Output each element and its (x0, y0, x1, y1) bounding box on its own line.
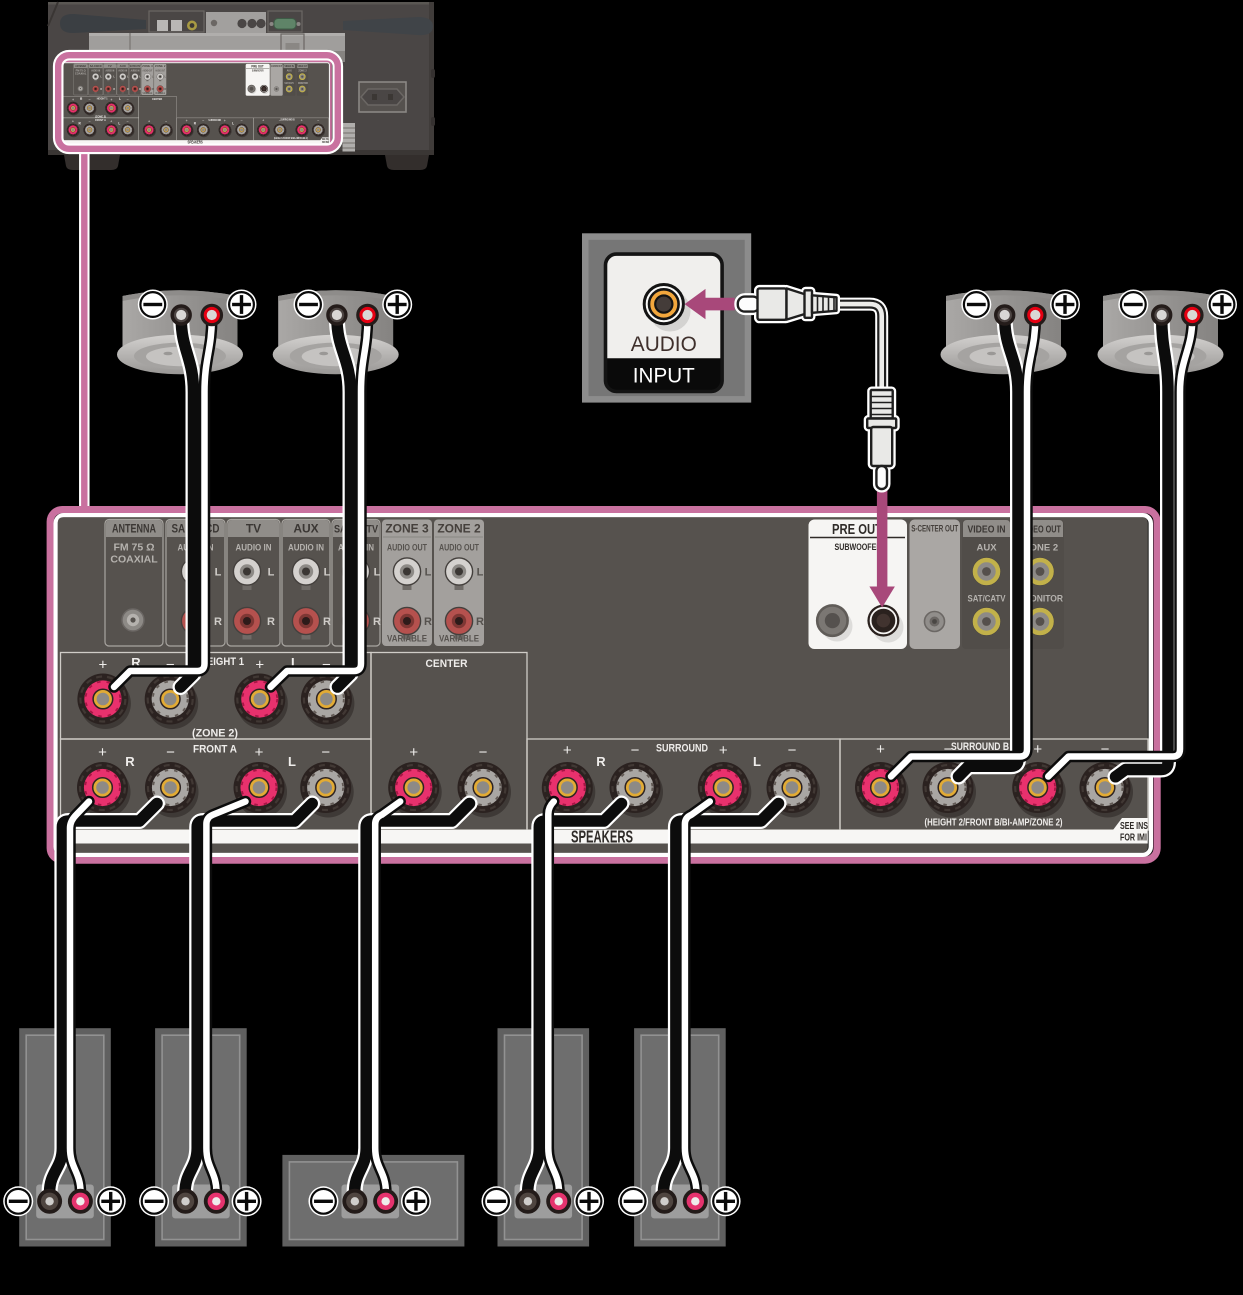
svg-text:FOR IMI: FOR IMI (1120, 832, 1147, 844)
svg-text:R: R (476, 616, 484, 628)
svg-text:ZONE 3: ZONE 3 (385, 522, 429, 536)
svg-text:VARIABLE: VARIABLE (387, 634, 427, 645)
svg-text:−: − (166, 744, 175, 761)
svg-text:COAXIAL: COAXIAL (110, 554, 158, 566)
svg-text:ANTENNA: ANTENNA (112, 524, 156, 536)
svg-text:AUDIO OUT: AUDIO OUT (387, 543, 427, 553)
svg-text:PRE OUT: PRE OUT (832, 522, 882, 538)
svg-text:L: L (324, 567, 331, 579)
svg-text:+: + (563, 742, 572, 759)
svg-text:R: R (267, 616, 275, 628)
svg-text:S-CENTER OUT: S-CENTER OUT (911, 524, 958, 534)
svg-text:AUDIO IN: AUDIO IN (288, 543, 324, 553)
svg-text:L: L (425, 567, 432, 579)
svg-text:−: − (479, 744, 488, 761)
svg-text:AUDIO IN: AUDIO IN (236, 543, 272, 553)
svg-text:L: L (374, 567, 381, 579)
svg-text:R: R (323, 616, 331, 628)
svg-text:(HEIGHT 2/FRONT B/BI-AMP/ZONE: (HEIGHT 2/FRONT B/BI-AMP/ZONE 2) (925, 818, 1063, 829)
svg-text:AUX: AUX (976, 543, 997, 554)
svg-text:AUX: AUX (293, 522, 318, 536)
svg-text:R: R (125, 754, 135, 769)
svg-text:R: R (596, 754, 606, 769)
svg-text:+: + (1033, 741, 1042, 758)
svg-text:SEE INS: SEE INS (1120, 820, 1148, 832)
svg-text:L: L (215, 567, 222, 579)
svg-text:VIDEO IN: VIDEO IN (968, 525, 1006, 536)
svg-text:L: L (268, 567, 275, 579)
svg-text:INPUT: INPUT (633, 364, 695, 388)
svg-text:+: + (255, 744, 264, 761)
svg-text:−: − (321, 744, 330, 761)
svg-text:(ZONE 2): (ZONE 2) (192, 728, 238, 740)
svg-text:FRONT A: FRONT A (193, 744, 237, 756)
svg-text:+: + (876, 741, 885, 758)
svg-text:TV: TV (246, 522, 261, 536)
svg-text:CENTER: CENTER (426, 658, 468, 670)
svg-text:FM 75 Ω: FM 75 Ω (113, 542, 154, 554)
svg-text:L: L (477, 567, 484, 579)
svg-text:+: + (719, 742, 728, 759)
svg-text:+: + (409, 744, 418, 761)
svg-text:+: + (99, 657, 108, 674)
svg-text:AUDIO OUT: AUDIO OUT (439, 543, 479, 553)
svg-text:ZONE 2: ZONE 2 (437, 522, 481, 536)
svg-text:AUDIO: AUDIO (631, 333, 697, 356)
svg-text:SURROUND: SURROUND (656, 743, 708, 755)
svg-text:R: R (373, 616, 381, 628)
svg-text:L: L (753, 754, 761, 769)
svg-text:SUBWOOFER: SUBWOOFER (835, 542, 882, 553)
svg-text:SPEAKERS: SPEAKERS (571, 827, 633, 847)
svg-text:SAT/CATV: SAT/CATV (968, 594, 1007, 605)
svg-text:L: L (288, 754, 296, 769)
svg-text:R: R (424, 616, 432, 628)
svg-text:VARIABLE: VARIABLE (439, 634, 479, 645)
svg-text:+: + (255, 657, 264, 674)
svg-text:−: − (788, 742, 797, 759)
svg-text:+: + (98, 744, 107, 761)
svg-text:R: R (214, 616, 222, 628)
svg-text:−: − (631, 742, 640, 759)
